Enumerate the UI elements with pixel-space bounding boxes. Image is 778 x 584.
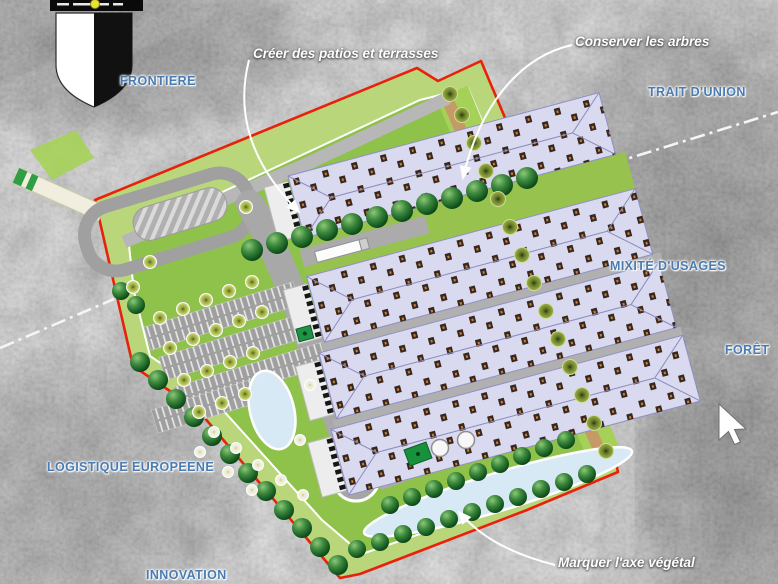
yellow-marker-icon <box>91 0 100 9</box>
site-plan-svg <box>0 0 778 584</box>
masterplan-view: FRONTIERE TRAIT D'UNION MIXITÉ D'USAGES … <box>0 0 778 584</box>
